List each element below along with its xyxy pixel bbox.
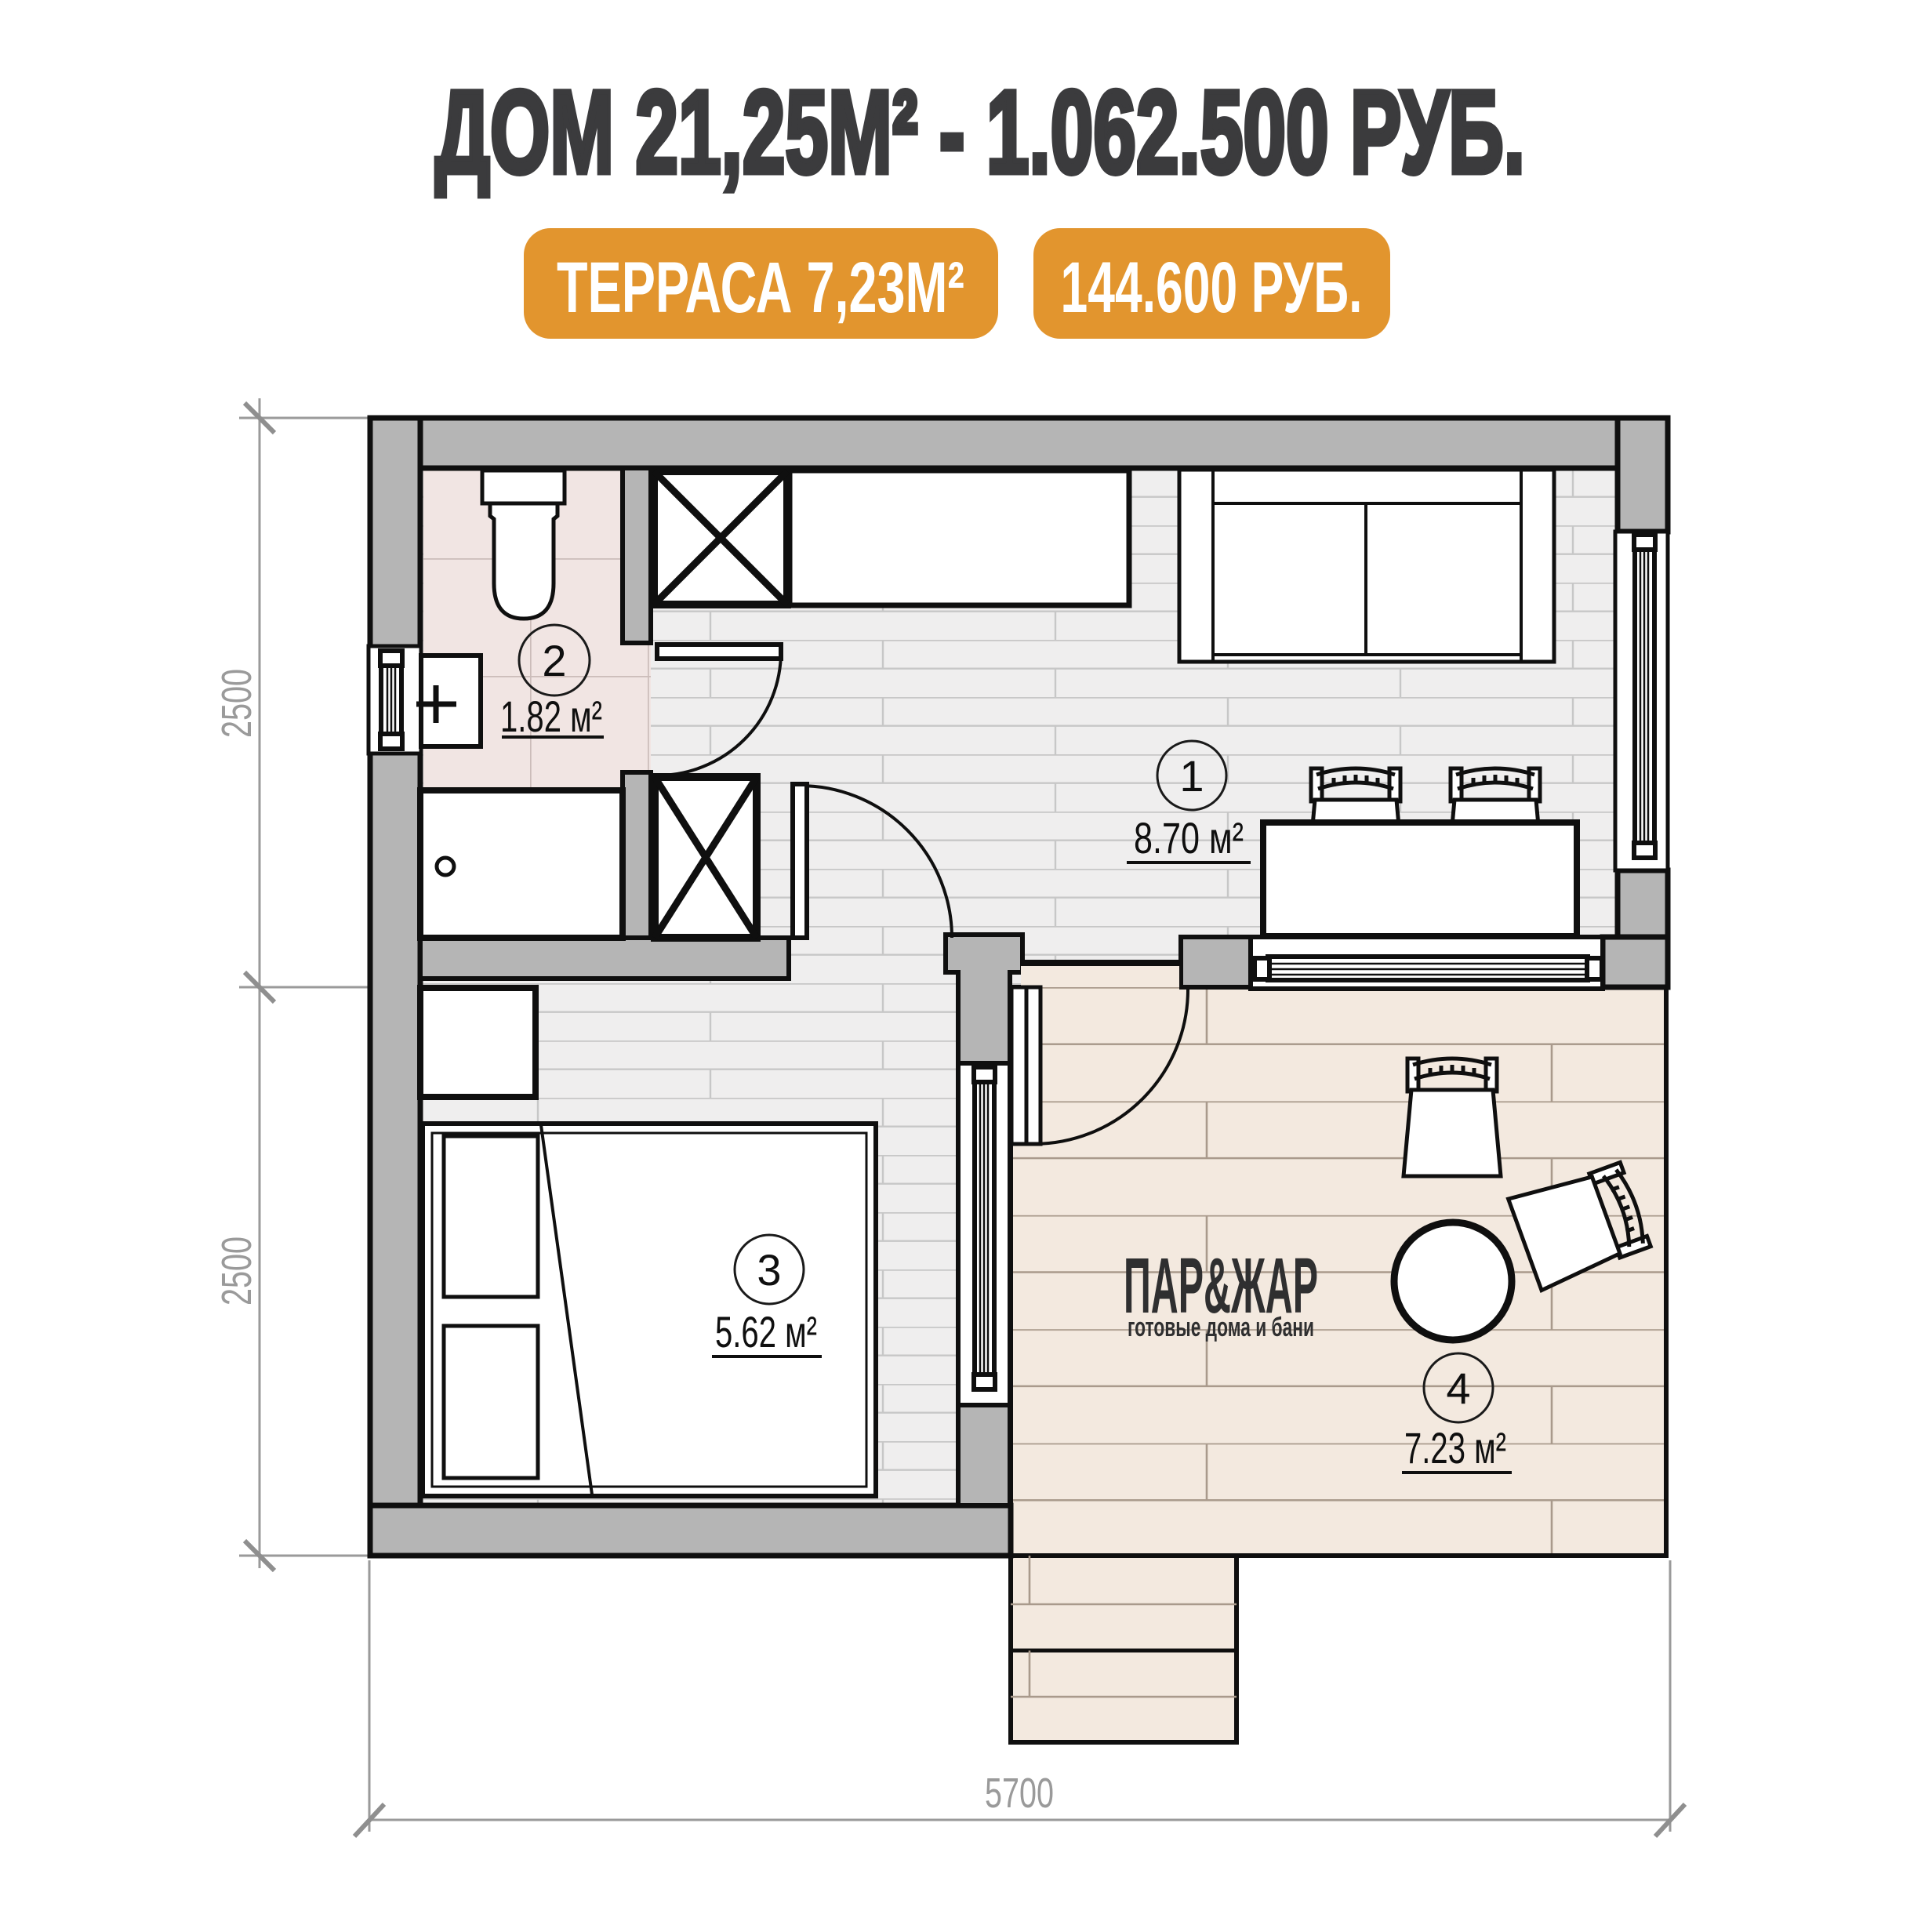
svg-text:ТЕРРАСА 7,23М²: ТЕРРАСА 7,23М²: [557, 248, 964, 328]
svg-text:2500: 2500: [213, 669, 260, 738]
svg-text:ДОМ 21,25М² - 1.062.500 РУБ.: ДОМ 21,25М² - 1.062.500 РУБ.: [435, 66, 1525, 198]
svg-text:3: 3: [757, 1245, 781, 1295]
svg-text:1: 1: [1179, 751, 1204, 801]
svg-text:2: 2: [542, 636, 566, 685]
svg-text:5.62 м²: 5.62 м²: [715, 1307, 817, 1356]
svg-text:готовые дома и бани: готовые дома и бани: [1128, 1313, 1314, 1342]
svg-text:7.23 м²: 7.23 м²: [1404, 1423, 1506, 1473]
svg-text:8.70 м²: 8.70 м²: [1134, 813, 1244, 862]
svg-text:4: 4: [1446, 1364, 1470, 1413]
svg-text:1.82 м²: 1.82 м²: [500, 692, 602, 741]
svg-text:5700: 5700: [985, 1770, 1054, 1817]
svg-text:2500: 2500: [213, 1237, 260, 1306]
svg-text:144.600 РУБ.: 144.600 РУБ.: [1061, 248, 1363, 328]
